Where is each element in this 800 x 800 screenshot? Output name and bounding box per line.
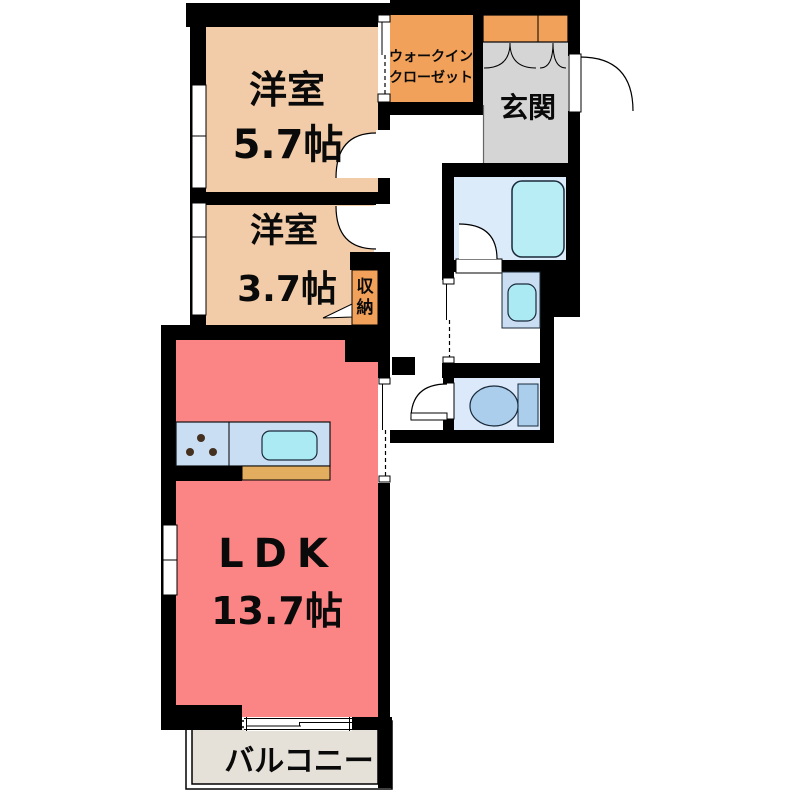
ldk-room: [176, 340, 378, 717]
bathtub: [512, 181, 564, 257]
storage-label-char2: 納: [357, 297, 374, 318]
walk-in-closet-label-line1: ウォークイン: [389, 49, 473, 65]
balcony-sliding-door: [244, 717, 352, 731]
toilet-tank: [518, 384, 538, 426]
page-background: [0, 0, 800, 800]
toilet-bowl: [470, 386, 518, 426]
bedroom1-label: 洋室: [249, 68, 325, 112]
balcony-label: バルコニー: [224, 744, 373, 779]
kitchen-sink: [262, 431, 317, 460]
kitchen-wall-stub: [176, 466, 242, 481]
bedroom2-label: 洋室: [250, 211, 318, 251]
bedroom2-window: [192, 203, 206, 315]
floorplan-svg: 洋室 5.7帖 洋室 3.7帖 LDK 13.7帖 玄関 ウォークイン クローゼ…: [0, 0, 800, 800]
storage-label-char1: 収: [357, 277, 375, 297]
ldk-size: 13.7帖: [211, 589, 343, 633]
kitchen: [176, 422, 330, 481]
washroom-sink: [508, 284, 536, 321]
ldk-window: [163, 525, 177, 595]
bedroom1-size: 5.7帖: [233, 122, 344, 168]
kitchen-counter-front: [242, 466, 330, 480]
ldk-sliding-door: [379, 378, 390, 482]
walk-in-closet-label-line2: クローゼット: [389, 69, 473, 86]
bedroom1-window: [192, 85, 206, 188]
bedroom2-size: 3.7帖: [237, 269, 337, 310]
entrance-label: 玄関: [500, 91, 556, 124]
ldk-label: LDK: [218, 531, 338, 577]
washroom-sliding-door: [443, 278, 454, 363]
shoe-cabinet: [483, 15, 568, 42]
